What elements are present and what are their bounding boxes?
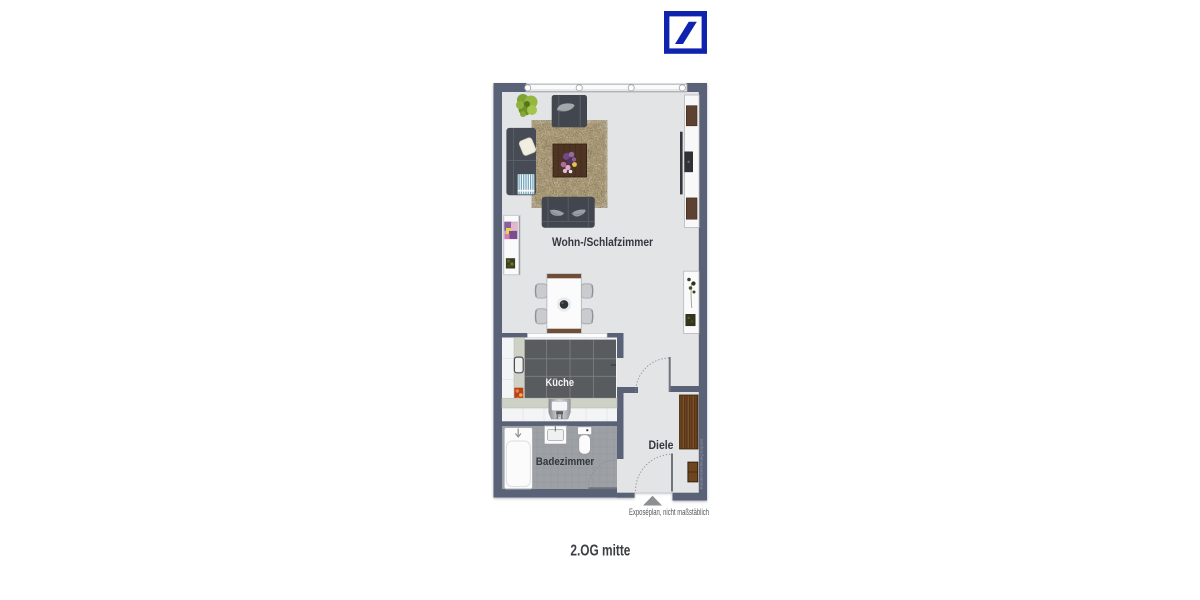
svg-text:Küche: Küche: [546, 377, 575, 389]
svg-text:Diele: Diele: [649, 438, 674, 452]
svg-text:Exposéplan, nicht maßstäblich: Exposéplan, nicht maßstäblich: [629, 506, 709, 517]
svg-text:2.OG mitte: 2.OG mitte: [570, 543, 630, 560]
svg-text:Kundenzeichnung Expose: Kundenzeichnung Expose: [700, 438, 704, 489]
svg-text:Badezimmer: Badezimmer: [536, 456, 595, 468]
svg-text:Wohn-/Schlafzimmer: Wohn-/Schlafzimmer: [552, 235, 653, 249]
